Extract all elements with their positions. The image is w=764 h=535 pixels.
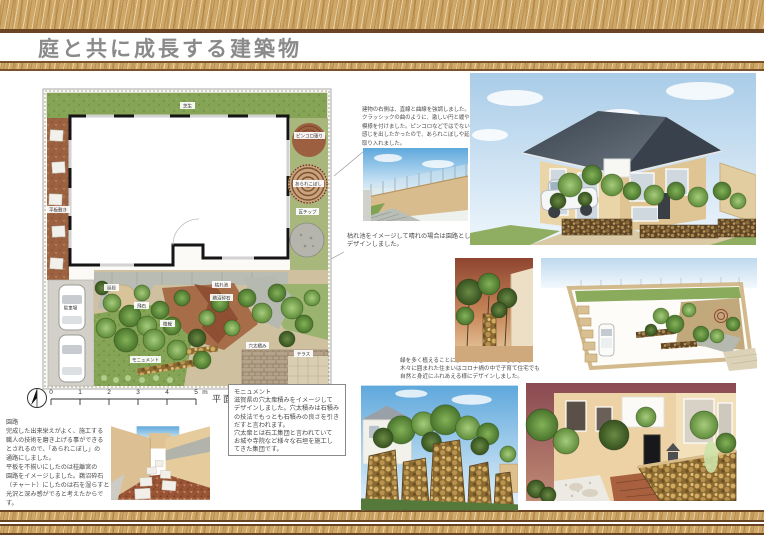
annotation-monument: モニュメント 滋賀県の穴太衆積みをイメージして デザインしました。穴太積みは石積… <box>228 384 346 456</box>
plan-garden <box>94 270 328 386</box>
render-house-exterior <box>470 73 756 245</box>
svg-text:3: 3 <box>136 389 140 396</box>
plan-house-footprint <box>70 116 288 265</box>
render-entrance-dusk <box>525 383 737 501</box>
render-stone-wall <box>361 384 518 512</box>
plan-plate-path <box>47 118 69 280</box>
render-aerial-view <box>541 258 757 372</box>
annotation-garden-path: 園路 完成した出来栄えがよく、施工する 職人の技術を磨き上げる事ができる とされ… <box>6 418 110 508</box>
svg-text:5: 5 <box>194 389 198 396</box>
plan-label: ピンコロ張り <box>294 132 325 139</box>
scale-bar: 0 1 2 3 4 5 m <box>48 385 213 409</box>
car <box>599 324 614 356</box>
plan-label: 駐車場 <box>61 304 80 311</box>
render-boundary-wall <box>363 148 468 221</box>
svg-text:1: 1 <box>78 389 82 396</box>
north-arrow-icon <box>24 385 50 411</box>
svg-text:鵜沼砕石: 鵜沼砕石 <box>213 294 231 301</box>
svg-text:枯れ池: 枯れ池 <box>215 281 229 288</box>
svg-text:穴太積み: 穴太積み <box>249 342 267 349</box>
presentation-board: 庭と共に成長する建築物 <box>0 0 764 535</box>
svg-text:モニュメント: モニュメント <box>132 357 159 362</box>
render-sunset-garden <box>455 258 533 362</box>
svg-text:m: m <box>202 389 207 396</box>
svg-text:植栽: 植栽 <box>163 320 172 327</box>
plan-label: 鵜沼砕石 <box>210 294 233 301</box>
svg-text:0: 0 <box>49 389 53 396</box>
svg-text:あられこぼし: あられこぼし <box>295 180 322 187</box>
plan-label: 平板敷き <box>46 206 70 213</box>
bottom-wood-bar-2 <box>0 524 764 535</box>
site-plan: 芝生 平板敷き 駐車場 ピンコロ張り あられこぼし 瓦チップ 鵜沼砕石 枯れ池 … <box>42 88 332 390</box>
title-underline-wood-bar <box>0 61 764 71</box>
svg-text:芝生: 芝生 <box>183 102 192 109</box>
svg-text:駐車場: 駐車場 <box>64 304 78 311</box>
plan-driveway <box>48 280 94 386</box>
svg-text:4: 4 <box>165 389 169 396</box>
plan-label: あられこぼし <box>293 180 324 187</box>
plan-label: 植栽 <box>160 320 175 327</box>
top-wood-bar <box>0 0 764 33</box>
svg-text:2: 2 <box>107 389 111 396</box>
plan-label: 枯れ池 <box>212 281 231 288</box>
plan-label: 穴太積み <box>246 342 269 349</box>
plan-label: 瓦チップ <box>296 208 319 215</box>
svg-text:延段: 延段 <box>107 284 116 291</box>
plan-label: モニュメント <box>130 356 161 363</box>
plan-label: 芝生 <box>180 102 195 109</box>
svg-text:平板敷き: 平板敷き <box>49 206 67 213</box>
page-title: 庭と共に成長する建築物 <box>38 33 302 63</box>
plan-label: 延段 <box>104 284 119 291</box>
render-side-path <box>111 421 210 505</box>
stone-pillar <box>483 314 496 348</box>
plan-label: テラス <box>294 350 313 357</box>
paver-pad <box>723 348 757 371</box>
car-top-view <box>59 335 85 382</box>
plan-label: 飛石 <box>134 302 149 309</box>
